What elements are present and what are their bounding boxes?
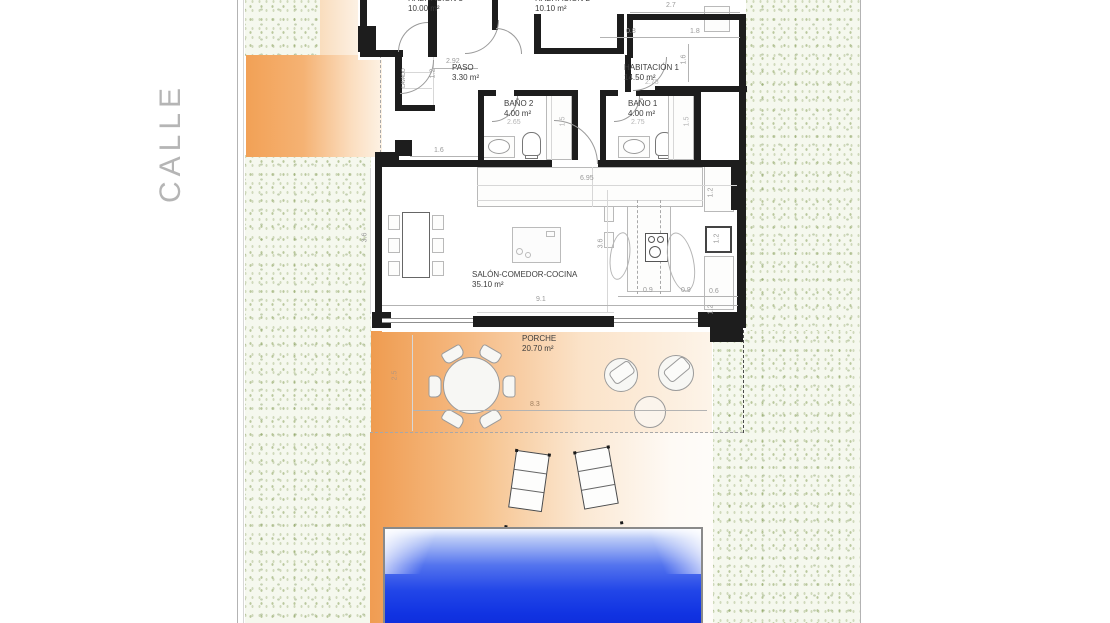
- dimension-label: 2.65: [507, 119, 521, 126]
- cooktop-burner-small-1: [648, 236, 655, 243]
- plot-boundary-right: [860, 0, 861, 623]
- room-area: 20.70 m²: [522, 344, 556, 354]
- wall: [627, 14, 633, 58]
- room-label-salon: SALÓN-COMEDOR-COCINA 35.10 m²: [472, 270, 577, 290]
- rug-decor-circle: [525, 252, 531, 258]
- dining-chair: [432, 215, 444, 230]
- window-sliding-right: [614, 318, 698, 323]
- dimension-label: 2.5: [391, 371, 398, 381]
- window-sliding-left: [382, 318, 473, 323]
- dimension-label: 1.2: [707, 188, 714, 198]
- room-label-bano-2: BAÑO 2 4.00 m²: [504, 99, 533, 119]
- bath1-sink: [623, 139, 645, 154]
- room-label-porche: PORCHE 20.70 m²: [522, 334, 556, 354]
- dimension-label: 3.6: [361, 233, 368, 243]
- wall-salon-left: [375, 160, 382, 327]
- cooktop-burner-small-2: [657, 236, 664, 243]
- wall-pillar: [358, 26, 376, 52]
- room-area: 35.10 m²: [472, 280, 577, 290]
- floor-plan-canvas: CALLE: [0, 0, 1110, 623]
- room-name: PASO: [452, 63, 479, 73]
- dimension-label: 0.8: [626, 28, 636, 35]
- room-label-paso: PASO 3.30 m²: [452, 63, 479, 83]
- tv-glyph: [546, 231, 555, 237]
- room-label-lavado: LAVADO: [401, 68, 407, 88]
- dim-line: [600, 37, 740, 38]
- dim-line: [412, 335, 413, 431]
- garden-left: [245, 155, 371, 623]
- porch-chair: [429, 376, 442, 398]
- room-name: PORCHE: [522, 334, 556, 344]
- lounger-segment: [579, 466, 615, 490]
- room-name: BAÑO 2: [504, 99, 533, 109]
- wall-salon-bottom: [473, 316, 614, 327]
- dimension-label: 1.6: [680, 55, 687, 65]
- dining-table: [402, 212, 430, 278]
- bath1-shower: [668, 94, 694, 160]
- dimension-label: 3.6: [597, 239, 604, 249]
- room-area: 3.30 m²: [452, 73, 479, 83]
- lounger-segment: [512, 469, 546, 492]
- dining-chair: [388, 215, 400, 230]
- wall: [395, 105, 435, 111]
- wall-porch-step: [710, 327, 743, 342]
- window-sill-line: [477, 312, 614, 313]
- street-label: CALLE: [141, 84, 201, 202]
- room-area: 4.00 m²: [628, 109, 657, 119]
- room-area: 14.50 m²: [624, 73, 679, 83]
- wall: [478, 90, 484, 164]
- room-label-habitacion-2: HABITACIÓN 2 10.10 m²: [535, 0, 590, 14]
- garden-top-left: [245, 0, 322, 56]
- dimension-label: 0.9: [681, 287, 691, 294]
- dim-line: [630, 12, 740, 13]
- kitchen-counter: [477, 167, 703, 207]
- room-area: 10.00 m²: [408, 4, 463, 14]
- roof-overhang-line-left: [380, 55, 381, 158]
- bath2-toilet-tank: [525, 155, 538, 159]
- dim-line: [607, 190, 608, 312]
- dimension-label: 1.5: [683, 117, 690, 127]
- wall: [600, 90, 606, 164]
- wall: [375, 152, 399, 160]
- garden-right-bottom: [713, 331, 860, 623]
- porch-edge-dashed: [370, 432, 743, 433]
- dining-chair: [432, 261, 444, 276]
- wardrobe-wall: [534, 48, 624, 54]
- room-name: BAÑO 1: [628, 99, 657, 109]
- room-name: SALÓN-COMEDOR-COCINA: [472, 270, 577, 280]
- room-label-bano-1: BAÑO 1 4.00 m²: [628, 99, 657, 119]
- wall: [514, 90, 578, 96]
- bath2-toilet: [522, 132, 541, 156]
- room-label-habitacion-1: HABITACIÓN 1 14.50 m²: [624, 63, 679, 83]
- dimension-label: 8.3: [530, 401, 540, 408]
- dimension-label: 1.5: [559, 117, 566, 127]
- rug-decor-circle: [516, 248, 523, 255]
- dining-chair: [388, 238, 400, 253]
- plot-boundary-left-inner: [243, 0, 244, 623]
- wall-corner: [698, 312, 742, 327]
- dimension-label: 0.9: [643, 287, 653, 294]
- dimension-label: 2.75: [631, 119, 645, 126]
- side-table: [634, 396, 666, 428]
- dim-line: [477, 185, 737, 186]
- wall: [694, 90, 701, 164]
- dimension-label: 1.2: [707, 305, 714, 315]
- wardrobe-wall: [617, 14, 624, 54]
- driveway-top-fade: [320, 0, 362, 56]
- garden-right-top: [746, 0, 860, 333]
- dim-line: [410, 156, 478, 157]
- dimension-label: 1.8: [690, 28, 700, 35]
- kitchen-guide-1: [637, 200, 638, 294]
- bath2-shower-line: [551, 94, 552, 160]
- driveway: [246, 55, 382, 157]
- bath2-sink: [488, 139, 510, 154]
- stool-back-1: [604, 206, 614, 222]
- dimension-label: 6.95: [580, 175, 594, 182]
- porch-chair: [503, 376, 516, 398]
- dimension-label: 1.2: [713, 234, 720, 244]
- wall: [636, 90, 700, 96]
- room-area: 4.00 m²: [504, 109, 533, 119]
- dim-line: [412, 410, 707, 411]
- dining-chair: [432, 238, 444, 253]
- dimension-label: 1.2: [429, 69, 436, 79]
- kitchen-counter-line: [477, 200, 703, 201]
- cabinet-bottom: [704, 256, 734, 310]
- wall: [627, 14, 746, 20]
- porch-table: [443, 357, 500, 414]
- dimension-label: 0.6: [709, 288, 719, 295]
- wall: [360, 50, 403, 57]
- dimension-label: 9.1: [536, 296, 546, 303]
- cooktop-burner-large: [649, 246, 661, 258]
- room-label-habitacion-3: HABITACIÓN 3 10.00 m²: [408, 0, 463, 14]
- dim-line: [382, 305, 738, 306]
- swimming-pool: [383, 527, 703, 623]
- dimension-label: 1.6: [434, 147, 444, 154]
- dim-line: [370, 168, 371, 314]
- bath1-shower-line: [673, 94, 674, 160]
- dim-line: [688, 44, 689, 82]
- dimension-label: 2.7: [666, 2, 676, 9]
- kitchen-counter-divider: [592, 167, 593, 207]
- room-area: 10.10 m²: [535, 4, 590, 14]
- plot-boundary-left: [237, 0, 238, 623]
- dim-line: [618, 296, 738, 297]
- dining-chair: [388, 261, 400, 276]
- setback-line-right: [743, 330, 744, 433]
- room-name: HABITACIÓN 1: [624, 63, 679, 73]
